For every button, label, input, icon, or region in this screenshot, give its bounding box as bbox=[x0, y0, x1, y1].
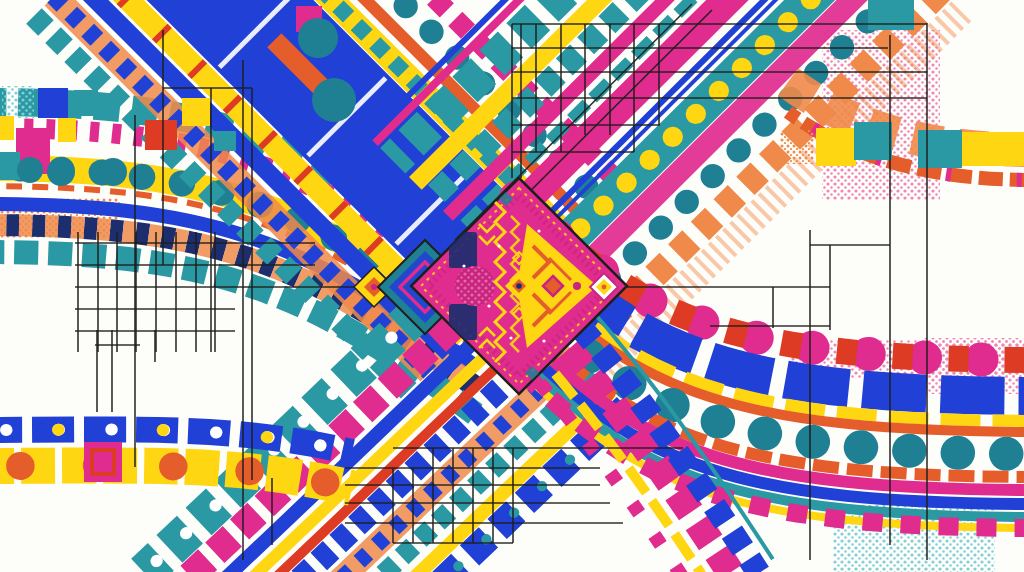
abstract-circuit-artwork bbox=[0, 0, 1024, 572]
scatter-circle bbox=[47, 158, 75, 186]
scatter-rect bbox=[918, 130, 962, 168]
scatter-rect bbox=[854, 122, 892, 160]
scatter-rect bbox=[0, 152, 20, 180]
scatter-rect bbox=[0, 116, 14, 140]
scatter-rect bbox=[780, 130, 814, 164]
scatter-circle bbox=[298, 18, 338, 58]
scatter-circle bbox=[99, 158, 127, 186]
scatter-rect bbox=[868, 0, 914, 30]
scatter-rect bbox=[962, 132, 1024, 166]
scatter-rect bbox=[2, 86, 34, 118]
scatter-circle bbox=[17, 157, 43, 183]
scatter-circle bbox=[312, 78, 356, 122]
scatter-rect bbox=[38, 88, 68, 118]
scatter-rect bbox=[816, 128, 856, 166]
artwork-stage bbox=[0, 0, 1024, 572]
scatter-rect bbox=[214, 131, 236, 151]
scatter-rect bbox=[58, 118, 76, 142]
scatter-rect bbox=[74, 90, 98, 116]
scatter-rect bbox=[182, 98, 210, 126]
scatter-rect bbox=[145, 120, 177, 150]
